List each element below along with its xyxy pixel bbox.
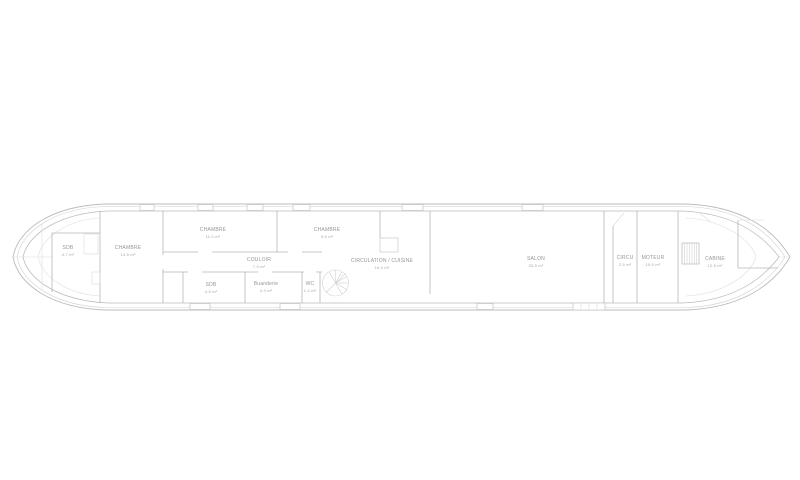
room-label-salon: SALON 33.5 m² xyxy=(527,256,545,268)
room-area: 11.0 m² xyxy=(200,234,226,239)
room-area: 16.0 m² xyxy=(351,265,413,270)
floor-plan-canvas: SDB 4.7 m² CHAMBRE 13.5 m² CHAMBRE 11.0 … xyxy=(0,0,800,480)
room-area: 7.5 m² xyxy=(247,264,271,269)
room-area: 13.5 m² xyxy=(115,252,141,257)
bow-construction-lines xyxy=(14,218,100,296)
room-name: SALON xyxy=(527,256,545,262)
room-label-sdb-2: SDB 4.5 m² xyxy=(205,282,218,294)
room-area: 2.5 m² xyxy=(617,262,634,267)
room-name: SDB xyxy=(205,282,218,288)
kitchen-counter xyxy=(380,238,398,252)
room-label-sdb-bow: SDB 4.7 m² xyxy=(62,245,75,257)
bathroom-fixtures xyxy=(84,234,100,284)
stern-ladder xyxy=(682,243,699,264)
room-name: CHAMBRE xyxy=(314,227,340,233)
boat-floor-plan-drawing xyxy=(0,0,800,480)
room-area: 1.4 m² xyxy=(304,288,317,293)
room-area: 4.3 m² xyxy=(254,288,279,293)
room-name: CIRCULATION / CUISINE xyxy=(351,258,413,264)
room-area: 12.5 m² xyxy=(705,263,725,268)
room-name: CABINE xyxy=(705,256,725,262)
hull-windows-top xyxy=(140,205,543,211)
room-name: MOTEUR xyxy=(642,255,665,261)
room-name: CIRCU xyxy=(617,255,634,261)
room-label-couloir: COULOIR 7.5 m² xyxy=(247,257,271,269)
room-label-circulation-cuisine: CIRCULATION / CUISINE 16.0 m² xyxy=(351,258,413,270)
room-label-chambre-3: CHAMBRE 9.5 m² xyxy=(314,227,340,239)
room-name: CHAMBRE xyxy=(200,227,226,233)
room-name: SDB xyxy=(62,245,75,251)
room-name: CHAMBRE xyxy=(115,245,141,251)
entry-door-bottom xyxy=(573,303,605,310)
room-label-circu: CIRCU 2.5 m² xyxy=(617,255,634,267)
room-area: 9.5 m² xyxy=(314,234,340,239)
room-label-chambre-2: CHAMBRE 11.0 m² xyxy=(200,227,226,239)
room-name: WC xyxy=(304,281,317,287)
room-area: 33.5 m² xyxy=(527,263,545,268)
room-label-moteur: MOTEUR 10.0 m² xyxy=(642,255,665,267)
room-label-chambre-1: CHAMBRE 13.5 m² xyxy=(115,245,141,257)
room-label-buanderie: Buanderie 4.3 m² xyxy=(254,281,279,293)
door-swing-lines xyxy=(613,212,764,226)
hull-windows-bottom xyxy=(190,304,493,310)
room-label-wc: WC 1.4 m² xyxy=(304,281,317,293)
room-area: 4.7 m² xyxy=(62,252,75,257)
room-name: Buanderie xyxy=(254,281,279,287)
room-label-cabine: CABINE 12.5 m² xyxy=(705,256,725,268)
room-name: COULOIR xyxy=(247,257,271,263)
room-area: 10.0 m² xyxy=(642,262,665,267)
room-area: 4.5 m² xyxy=(205,289,218,294)
interior-walls xyxy=(52,211,778,303)
spiral-staircase xyxy=(323,270,349,296)
